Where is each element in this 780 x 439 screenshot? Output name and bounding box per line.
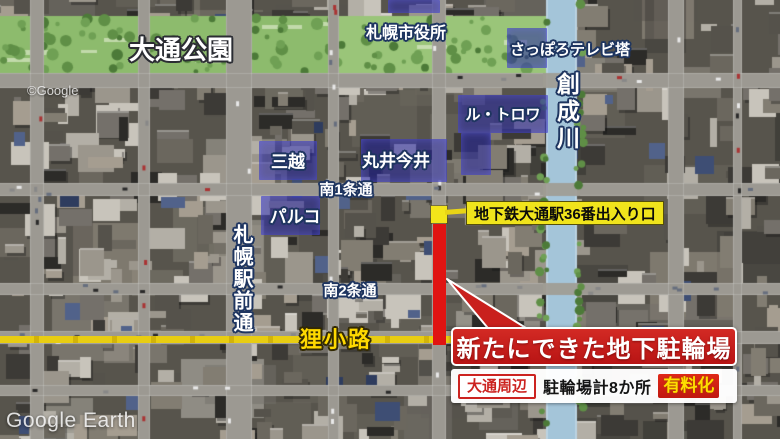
google-earth-watermark: Google Earth bbox=[6, 409, 136, 433]
map-label-le-trois: ル・トロワ bbox=[465, 108, 540, 123]
map-label-city-hall: 札幌市役所 bbox=[366, 26, 446, 42]
info-bar: 大通周辺 駐輪場計8か所 有料化 bbox=[451, 369, 737, 403]
map-label-parco: パルコ bbox=[270, 209, 321, 226]
highlight-le-trois-annex bbox=[461, 133, 491, 175]
google-watermark: ©Google bbox=[27, 83, 79, 98]
underground-parking-line bbox=[433, 224, 446, 345]
map-label-minami-1jo: 南1条通 bbox=[319, 183, 372, 198]
paid-badge: 有料化 bbox=[658, 374, 719, 398]
map-label-odori-park: 大通公園 bbox=[129, 37, 233, 63]
news-map-graphic: 大通公園 札幌市役所 さっぽろテレビ塔 ル・トロワ 創成川 三越 丸井今井 南1… bbox=[0, 0, 780, 439]
facility-count-text: 駐輪場計8か所 bbox=[543, 374, 651, 398]
map-label-tv-tower: さっぽろテレビ塔 bbox=[510, 43, 630, 58]
map-label-sosei-river: 創成川 bbox=[555, 72, 578, 153]
map-label-minami-2jo: 南2条通 bbox=[323, 284, 376, 299]
area-badge: 大通周辺 bbox=[458, 374, 536, 399]
exit-36-label: 地下鉄大通駅36番出入り口 bbox=[466, 201, 664, 225]
map-label-marui-imai: 丸井今井 bbox=[362, 153, 430, 170]
tanukikoji-arcade-line bbox=[0, 336, 452, 343]
map-label-tanukikoji: 狸小路 bbox=[300, 329, 372, 351]
headline-banner: 新たにできた地下駐輪場 bbox=[451, 327, 737, 366]
highlight-city-hall bbox=[388, 0, 440, 13]
map-label-mitsukoshi: 三越 bbox=[271, 154, 305, 171]
map-label-ekimae-dori: 札幌駅前通 bbox=[231, 224, 251, 334]
